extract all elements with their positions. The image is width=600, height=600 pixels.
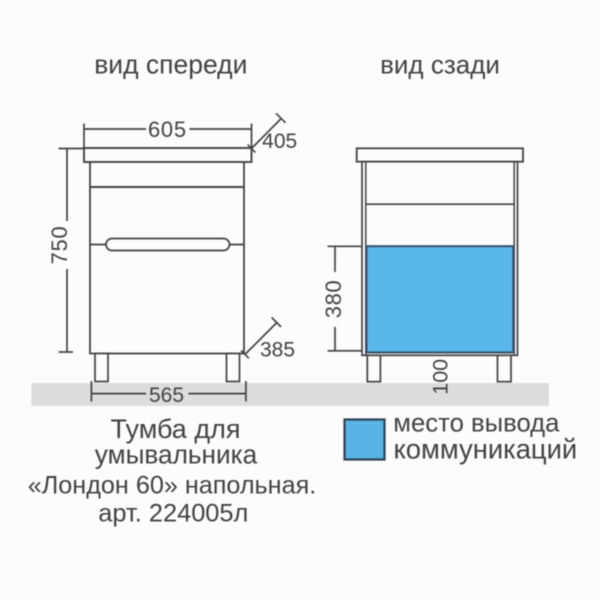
svg-text:коммуникаций: коммуникаций [394,433,578,464]
svg-text:380: 380 [321,279,346,318]
svg-text:вид сзади: вид сзади [380,50,500,80]
svg-text:385: 385 [260,338,295,361]
svg-text:арт. 224005л: арт. 224005л [98,500,248,528]
svg-text:750: 750 [47,226,72,265]
svg-text:100: 100 [429,359,453,395]
svg-text:605: 605 [148,117,187,142]
svg-text:«Лондон 60» напольная.: «Лондон 60» напольная. [28,472,316,500]
svg-text:умывальника: умывальника [95,440,258,470]
svg-text:565: 565 [149,384,184,407]
svg-text:вид спереди: вид спереди [94,50,247,80]
svg-text:405: 405 [262,130,297,153]
